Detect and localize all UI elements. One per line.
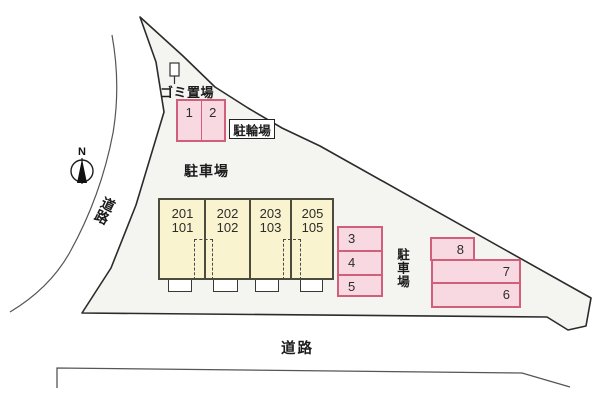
apartment-building: 201 101 202 102 203 103 205 105 bbox=[158, 198, 334, 280]
porch bbox=[255, 280, 279, 292]
unit-upper: 201 bbox=[160, 207, 205, 221]
unit-label-203-103: 203 103 bbox=[248, 207, 293, 234]
left-road-line bbox=[10, 35, 117, 312]
unit-label-201-101: 201 101 bbox=[160, 207, 205, 234]
bicycle-parking-label: 駐輪場 bbox=[229, 119, 275, 139]
parking-space-7: 7 bbox=[431, 259, 521, 284]
parking-space-8: 8 bbox=[430, 237, 475, 261]
entry-alcove-dashed bbox=[283, 239, 301, 280]
bottom-road-line bbox=[57, 368, 570, 388]
parking-lot-right-label: 駐車場 bbox=[396, 248, 412, 289]
entry-alcove-dashed bbox=[194, 239, 213, 280]
north-compass-icon bbox=[71, 158, 93, 184]
parking-space-3: 3 bbox=[339, 228, 381, 251]
unit-lower: 102 bbox=[205, 221, 250, 235]
unit-upper: 205 bbox=[290, 207, 335, 221]
unit-lower: 103 bbox=[248, 221, 293, 235]
unit-label-205-105: 205 105 bbox=[290, 207, 335, 234]
parking-spaces-1-2: 1 2 bbox=[176, 99, 226, 142]
unit-label-202-102: 202 102 bbox=[205, 207, 250, 234]
parking-space-1: 1 bbox=[178, 101, 201, 140]
parking-space-6: 6 bbox=[431, 282, 521, 308]
unit-lower: 105 bbox=[290, 221, 335, 235]
parking-lot-label: 駐車場 bbox=[184, 161, 229, 181]
road-bottom-label: 道路 bbox=[281, 337, 314, 358]
parking-space-4: 4 bbox=[339, 252, 381, 275]
unit-upper: 203 bbox=[248, 207, 293, 221]
porch bbox=[168, 280, 192, 292]
north-letter: N bbox=[70, 146, 94, 158]
unit-lower: 101 bbox=[160, 221, 205, 235]
site-plan-canvas: ゴミ置場 1 2 駐輪場 駐車場 201 101 202 102 203 103… bbox=[0, 0, 600, 400]
porch bbox=[300, 280, 323, 292]
porch bbox=[213, 280, 238, 292]
unit-upper: 202 bbox=[205, 207, 250, 221]
parking-spaces-3-4-5: 3 4 5 bbox=[337, 226, 383, 297]
parking-space-2: 2 bbox=[201, 101, 225, 140]
parking-space-5: 5 bbox=[339, 276, 381, 299]
